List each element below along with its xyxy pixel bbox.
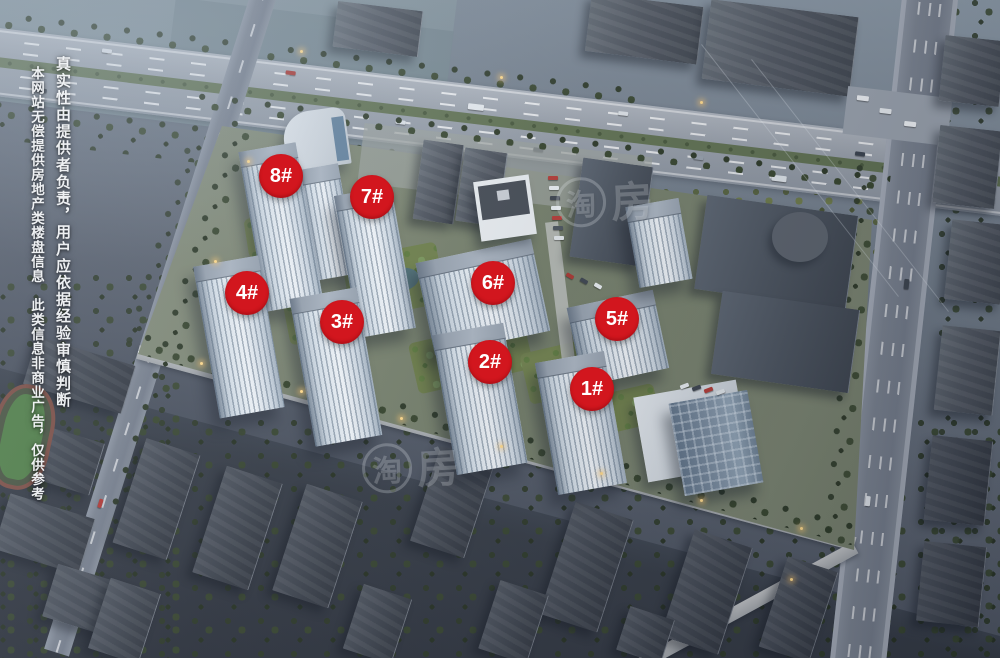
disclaimer-line-2: 本网站无偿提供房地产类楼盘信息 此类信息非商业广告，仅供参考 <box>26 66 46 501</box>
car <box>865 496 871 506</box>
building-marker-1[interactable]: 1# <box>570 367 614 411</box>
street-lamp <box>790 578 793 581</box>
building-block <box>944 219 1000 305</box>
aerial-site-plan: 淘 房 淘 房 8# 7# 6# 5# 4# 3# 2# 1# 真实性由提供者负… <box>0 0 1000 658</box>
street-lamp <box>700 499 703 502</box>
street-lamp <box>200 362 203 365</box>
building-block <box>934 325 1000 416</box>
street-lamp <box>600 472 603 475</box>
building-marker-3[interactable]: 3# <box>320 300 364 344</box>
building-marker-5[interactable]: 5# <box>595 297 639 341</box>
street-lamp <box>300 50 303 53</box>
street-lamp <box>500 76 503 79</box>
truck <box>468 103 485 111</box>
building-block <box>585 0 704 65</box>
building-marker-6[interactable]: 6# <box>471 261 515 305</box>
round-building <box>772 212 828 262</box>
building-marker-8[interactable]: 8# <box>259 154 303 198</box>
disclaimer-line-1: 真实性由提供者负责，用户应依据经验审慎判断 <box>52 56 73 409</box>
car <box>903 279 909 289</box>
watermark-taofang: 淘 房 <box>554 168 654 234</box>
building-block <box>932 125 1000 209</box>
street-lamp <box>214 260 217 263</box>
truck <box>879 108 892 114</box>
building-block <box>916 541 987 627</box>
watermark-text: 房 <box>415 434 460 497</box>
building-block <box>924 435 994 526</box>
street-lamp <box>500 445 503 448</box>
watermark-taofang: 淘 房 <box>360 434 460 500</box>
building-marker-4[interactable]: 4# <box>225 271 269 315</box>
car <box>855 151 865 156</box>
truck <box>904 121 917 127</box>
street-lamp <box>800 527 803 530</box>
watermark-text: 房 <box>609 168 654 231</box>
street-lamp <box>400 417 403 420</box>
street-lamp <box>700 101 703 104</box>
building-block <box>702 0 860 97</box>
car <box>554 236 564 240</box>
car <box>618 111 628 116</box>
sales-center <box>473 174 537 241</box>
taofang-logo-icon: 淘 <box>361 441 414 494</box>
building-marker-7[interactable]: 7# <box>350 175 394 219</box>
taofang-logo-icon: 淘 <box>555 175 608 228</box>
street-lamp <box>300 390 303 393</box>
street-lamp <box>247 160 250 163</box>
building-block <box>939 35 1000 107</box>
office-tower <box>668 390 763 496</box>
truck <box>857 95 870 101</box>
building-marker-2[interactable]: 2# <box>468 340 512 384</box>
